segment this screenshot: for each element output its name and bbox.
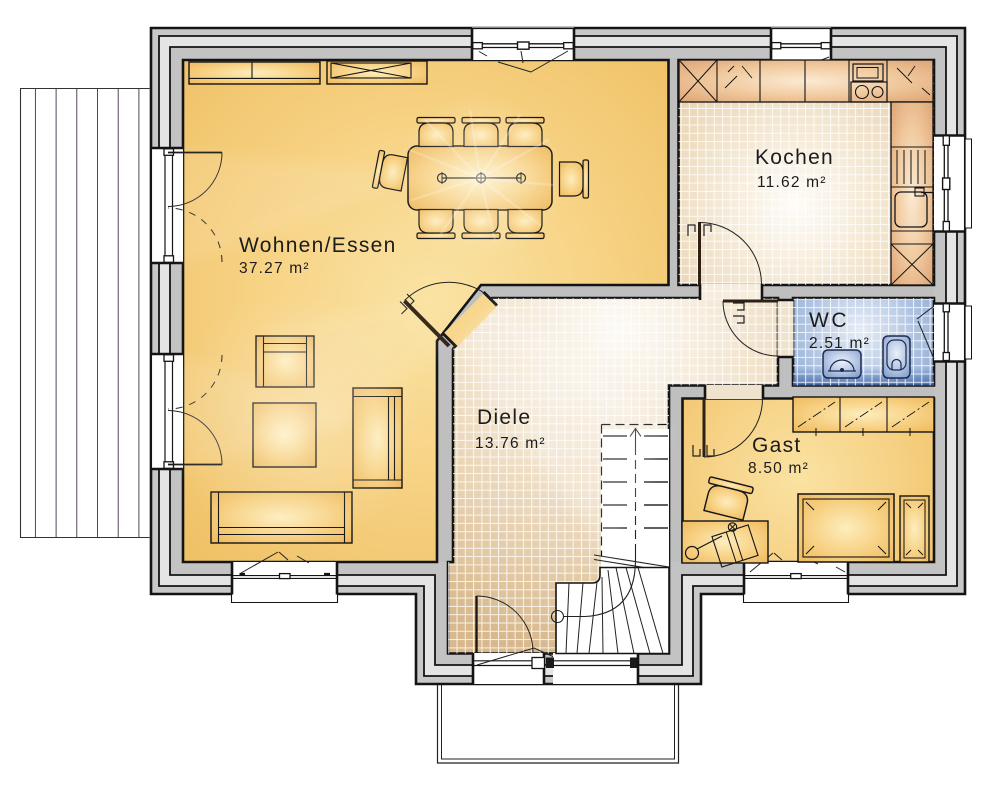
svg-text:Wohnen/Essen: Wohnen/Essen <box>239 234 397 257</box>
svg-text:11.62 m²: 11.62 m² <box>757 174 827 191</box>
svg-text:WC: WC <box>809 309 849 332</box>
svg-text:37.27 m²: 37.27 m² <box>239 260 310 277</box>
svg-text:8.50 m²: 8.50 m² <box>748 460 809 477</box>
svg-text:Gast: Gast <box>752 434 802 457</box>
svg-text:Kochen: Kochen <box>755 146 834 169</box>
svg-text:13.76 m²: 13.76 m² <box>475 435 546 452</box>
svg-text:Diele: Diele <box>477 406 531 429</box>
svg-text:2.51 m²: 2.51 m² <box>809 335 870 352</box>
